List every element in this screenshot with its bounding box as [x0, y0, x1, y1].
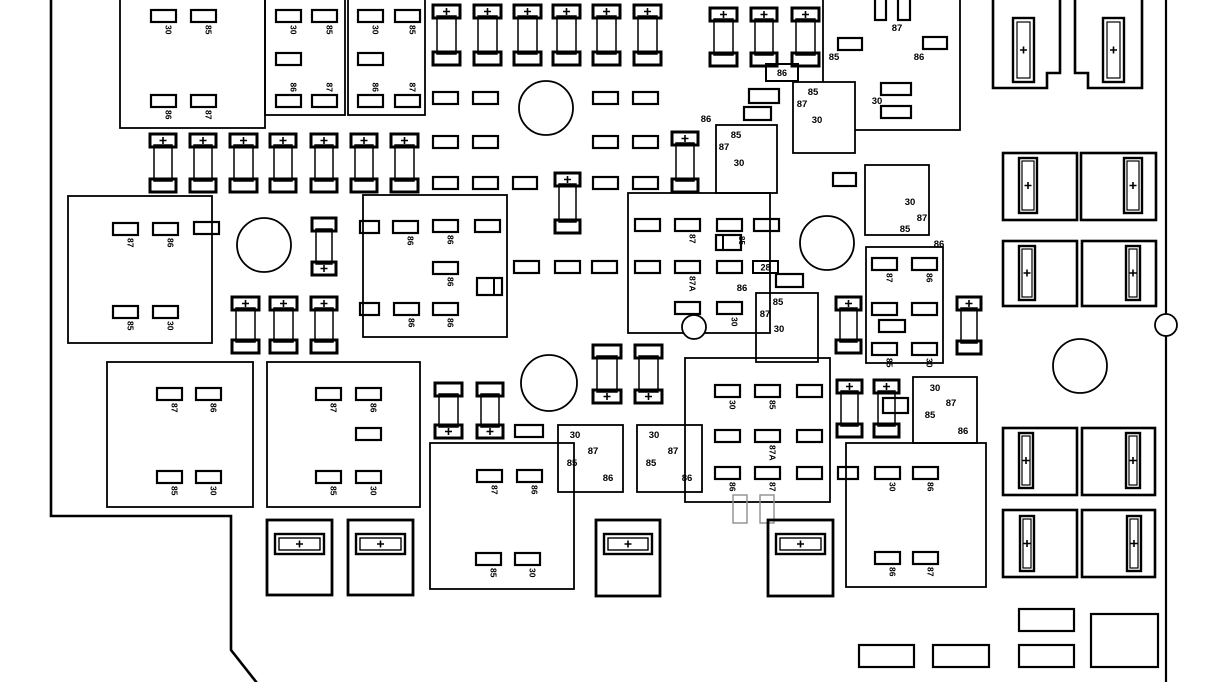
cavity-slot: [593, 136, 618, 148]
pin-label: 86: [371, 83, 381, 93]
plain-slot: [1019, 609, 1074, 631]
pin-label: 86: [164, 110, 174, 120]
terminal-label: 86: [701, 114, 712, 125]
fuse-body: [154, 145, 172, 181]
pin-label: 85: [329, 486, 339, 496]
fuse-plus-mark: [361, 137, 368, 144]
fuse-holder: [348, 520, 413, 595]
ghost-slot: [733, 495, 747, 523]
cavity-slot: [151, 95, 176, 107]
cavity-slot: [196, 471, 221, 483]
cavity-slot: [473, 136, 498, 148]
pin-label: 86: [209, 403, 219, 413]
maxi-fuse-notched: [1075, 0, 1142, 88]
cavity-slot: [433, 220, 458, 232]
maxi-fuse-plus-mark: [1020, 47, 1027, 54]
cavity-slot: [356, 428, 381, 440]
cavity-slot: [194, 222, 219, 234]
maxi-fuse-plus-mark: [1025, 182, 1032, 189]
plain-slot: [859, 645, 914, 667]
cavity-slot: [276, 10, 301, 22]
fuse-plus-mark: [563, 8, 570, 15]
pin-label: 30: [289, 25, 299, 35]
pin-label: 87: [329, 403, 339, 413]
fuse-holder: [267, 520, 332, 595]
alignment-hole: [800, 216, 854, 270]
fuse-body: [315, 308, 333, 342]
fuse-body: [315, 145, 333, 181]
fuse-plus-mark: [966, 300, 973, 307]
terminal-label: 87: [797, 99, 808, 110]
fuse-plus-mark: [644, 8, 651, 15]
cavity-slot: [872, 343, 897, 355]
fuse-plus-mark: [564, 176, 571, 183]
terminal-label: 85: [925, 410, 936, 421]
pin-label: 87: [408, 83, 418, 93]
pin-label: 85: [489, 568, 499, 578]
pin-label: 87: [126, 238, 136, 248]
relay-block: [793, 82, 855, 153]
alignment-hole: [1053, 339, 1107, 393]
cavity-slot: [797, 467, 822, 479]
fuse-holder: [768, 520, 833, 596]
cavity-slot: [593, 92, 618, 104]
cavity-slot: [394, 303, 419, 315]
pin-label: 30: [209, 486, 219, 496]
pin-label: 30: [888, 482, 898, 492]
pin-label: 87A: [768, 445, 778, 461]
plain-slot: [923, 37, 947, 49]
terminal-label: 85: [773, 297, 784, 308]
cavity-slot: [276, 95, 301, 107]
pin-label: 85: [204, 25, 214, 35]
plain-slot: [833, 173, 856, 186]
cavity-slot: [517, 470, 542, 482]
fuse-body: [878, 391, 895, 426]
cavity-slot: [633, 136, 658, 148]
plain-slot: [749, 89, 779, 103]
terminal-label: 86: [603, 473, 614, 484]
pin-label: 86: [166, 238, 176, 248]
fuse-plus-mark: [846, 383, 853, 390]
maxi-fuse-box: [1003, 153, 1077, 220]
terminal-label: 86: [737, 283, 748, 294]
cavity-slot: [715, 467, 740, 479]
cavity-slot: [395, 10, 420, 22]
maxi-fuse-plus-mark: [1023, 457, 1030, 464]
cavity-slot: [196, 388, 221, 400]
relay-block: [120, 0, 265, 128]
plain-slot: [881, 83, 911, 95]
terminal-label: 86: [958, 426, 969, 437]
cavity-slot: [157, 471, 182, 483]
pin-label: 86: [888, 567, 898, 577]
cavity-slot: [356, 471, 381, 483]
cavity-slot: [754, 219, 779, 231]
terminal-label: 85: [829, 52, 840, 63]
fuse-body: [274, 145, 292, 181]
pin-label: 85: [126, 321, 136, 331]
terminal-label: 85: [646, 458, 657, 469]
terminal-label: 86: [934, 239, 945, 250]
pin-label: 86: [407, 318, 417, 328]
plain-slot: [1019, 645, 1074, 667]
pin-label: 87: [688, 234, 698, 244]
pin-label: 86: [446, 277, 456, 287]
pin-label: 87: [885, 273, 895, 283]
cavity-slot: [157, 388, 182, 400]
cavity-slot: [755, 385, 780, 397]
fuse-holder: [596, 520, 660, 596]
fuse-holder-plus-mark: [797, 541, 804, 548]
cavity-slot: [715, 430, 740, 442]
cavity-slot: [797, 385, 822, 397]
pin-label: 30: [728, 400, 738, 410]
cavity-slot: [717, 219, 742, 231]
fuse-plus-mark: [883, 383, 890, 390]
pin-label: 87: [170, 403, 180, 413]
fuse-plus-mark: [761, 11, 768, 18]
alignment-hole: [237, 218, 291, 272]
cavity-slot: [153, 306, 178, 318]
fuse-body: [236, 308, 255, 342]
cavity-slot: [872, 303, 897, 315]
fuse-body: [194, 145, 212, 181]
fuse-plus-mark: [682, 135, 689, 142]
fuse-relay-panel-diagram: 3085868730858687308586878786853086868686…: [0, 0, 1228, 682]
cavity-slot: [715, 385, 740, 397]
terminal-label: 85: [900, 224, 911, 235]
cavity-slot: [433, 303, 458, 315]
cavity-slot: [151, 10, 176, 22]
cavity-slot: [395, 95, 420, 107]
fuse-plus-mark: [321, 137, 328, 144]
fuse-plus-mark: [484, 8, 491, 15]
pin-label: 87: [325, 83, 335, 93]
cavity-slot: [358, 10, 383, 22]
fuse-plus-mark: [524, 8, 531, 15]
cavity-slot: [475, 220, 500, 232]
cavity-slot: [113, 306, 138, 318]
fuse-plus-mark: [445, 428, 452, 435]
fuse-body: [714, 19, 733, 55]
relay-block: [430, 443, 574, 589]
pin-label: 30: [166, 321, 176, 331]
cavity-slot: [312, 95, 337, 107]
terminal-label: 86: [914, 52, 925, 63]
cavity-slot: [879, 320, 905, 332]
cavity-slot: [635, 261, 660, 273]
plain-slot: [776, 274, 803, 287]
pin-label: 86: [369, 403, 379, 413]
terminal-label: 87: [668, 446, 679, 457]
maxi-fuse-box: [1003, 510, 1077, 577]
fuse-plus-mark: [160, 137, 167, 144]
cavity-slot: [316, 471, 341, 483]
cavity-slot: [433, 177, 458, 189]
plain-slot: [838, 38, 862, 50]
cavity-slot: [473, 92, 498, 104]
fuse-body: [518, 16, 537, 54]
fuse-body: [439, 394, 458, 427]
fuse-body: [597, 16, 616, 54]
fuse-body: [395, 145, 414, 181]
terminal-label: 85: [567, 458, 578, 469]
cavity-slot: [358, 95, 383, 107]
fuse-body: [557, 16, 576, 54]
cavity-slot: [514, 261, 539, 273]
alignment-hole: [682, 315, 706, 339]
maxi-fuse-plus-mark: [1024, 270, 1031, 277]
cavity-slot: [476, 553, 501, 565]
cavity-slot: [717, 261, 742, 273]
relay-block: [716, 125, 777, 193]
cavity-slot: [191, 10, 216, 22]
pin-label: 86: [289, 83, 299, 93]
terminal-label: 87: [946, 398, 957, 409]
fuse-body: [597, 356, 617, 392]
boxed-label-text: 28: [760, 263, 770, 273]
pin-label: 85: [885, 358, 895, 368]
pin-label: 85: [768, 400, 778, 410]
maxi-fuse-plus-mark: [1131, 540, 1138, 547]
cavity-slot: [872, 258, 897, 270]
fuse-plus-mark: [321, 265, 328, 272]
fuse-body: [355, 145, 373, 181]
cavity-slot: [555, 261, 580, 273]
pin-label: 87: [926, 567, 936, 577]
pin-label: 85: [325, 25, 335, 35]
terminal-label: 30: [872, 96, 883, 107]
fuse-body: [481, 394, 499, 427]
maxi-fuse-box: [1003, 428, 1077, 495]
pin-label: 86: [406, 236, 416, 246]
fuse-plus-mark: [603, 8, 610, 15]
plain-slot: [898, 0, 910, 20]
pin-label: 30: [164, 25, 174, 35]
fuse-plus-mark: [845, 300, 852, 307]
cavity-slot: [913, 467, 938, 479]
cavity-slot: [312, 10, 337, 22]
fuse-holder-plus-mark: [296, 541, 303, 548]
pin-label: 85: [170, 486, 180, 496]
plain-slot: [515, 425, 543, 437]
pin-label: 86: [446, 318, 456, 328]
alignment-hole: [519, 81, 573, 135]
cavity-slot: [797, 430, 822, 442]
cavity-slot: [513, 177, 537, 189]
relay-block: [267, 362, 420, 507]
relay-block: [865, 165, 929, 235]
relay-block: [846, 443, 986, 587]
terminal-label: 30: [734, 158, 745, 169]
pin-label: 86: [446, 235, 456, 245]
fuse-plus-mark: [802, 11, 809, 18]
pin-label: 30: [925, 358, 935, 368]
cavity-slot: [356, 388, 381, 400]
cavity-slot: [675, 261, 700, 273]
fuse-body: [559, 184, 576, 222]
fuse-body: [840, 308, 857, 342]
maxi-fuse-plus-mark: [1130, 457, 1137, 464]
cavity-slot: [675, 219, 700, 231]
maxi-fuse-notched: [993, 0, 1060, 88]
fuse-body: [274, 308, 293, 342]
panel-boundary-left: [51, 0, 257, 682]
cavity-slot: [838, 467, 858, 479]
boxed-label-text: 86: [777, 68, 787, 78]
fuse-plus-mark: [443, 8, 450, 15]
fuse-body: [755, 19, 773, 55]
maxi-fuse-box: [1082, 428, 1155, 495]
maxi-fuse-plus-mark: [1130, 182, 1137, 189]
pin-label: 85: [408, 25, 418, 35]
cavity-slot: [633, 177, 658, 189]
pin-label: 86: [728, 482, 738, 492]
pin-label: 30: [528, 568, 538, 578]
fuse-holder-plus-mark: [377, 541, 384, 548]
fuse-body: [676, 143, 694, 181]
fuse-body: [234, 145, 253, 181]
maxi-fuse-box: [1081, 153, 1156, 220]
cavity-slot: [913, 552, 938, 564]
cavity-slot: [592, 261, 617, 273]
cavity-slot: [433, 262, 458, 274]
terminal-label: 87: [917, 213, 928, 224]
fuse-body: [478, 16, 497, 54]
terminal-label: 30: [774, 324, 785, 335]
fuse-body: [437, 16, 456, 54]
plain-slot: [744, 107, 771, 120]
plain-slot: [933, 645, 989, 667]
alignment-hole: [521, 355, 577, 411]
fuse-plus-mark: [200, 137, 207, 144]
relay-block: [348, 0, 425, 115]
fuse-body: [841, 391, 858, 426]
plain-slot: [875, 0, 886, 20]
fuse-plus-mark: [321, 300, 328, 307]
cavity-slot: [358, 53, 383, 65]
terminal-label: 86: [682, 473, 693, 484]
terminal-label: 30: [930, 383, 941, 394]
cavity-slot: [633, 92, 658, 104]
cavity-slot: [755, 430, 780, 442]
terminal-label: 87: [588, 446, 599, 457]
cavity-slot: [912, 303, 937, 315]
fuse-plus-mark: [280, 137, 287, 144]
fuse-body: [796, 19, 815, 55]
split-cavity: [477, 278, 502, 295]
terminal-label: 87: [892, 23, 903, 34]
cavity-slot: [593, 177, 618, 189]
fuse-plus-mark: [242, 300, 249, 307]
terminal-label: 85: [808, 87, 819, 98]
cavity-slot: [755, 467, 780, 479]
fuse-plus-mark: [720, 11, 727, 18]
fuse-plus-mark: [487, 428, 494, 435]
maxi-fuse-plus-mark: [1024, 540, 1031, 547]
pin-label: 86: [925, 273, 935, 283]
pin-label: 30: [730, 317, 740, 327]
plain-slot: [881, 106, 911, 118]
maxi-fuse-plus-mark: [1130, 270, 1137, 277]
fuse-body: [638, 16, 657, 54]
cavity-slot: [191, 95, 216, 107]
pin-label: 30: [371, 25, 381, 35]
fuse-plus-mark: [645, 393, 652, 400]
relay-block: [756, 293, 818, 362]
cavity-slot: [276, 53, 301, 65]
cavity-slot: [875, 552, 900, 564]
maxi-fuse-box: [1082, 241, 1156, 306]
fuse-body: [639, 356, 658, 392]
terminal-label: 30: [570, 430, 581, 441]
fuse-plus-mark: [240, 137, 247, 144]
pin-label: 87A: [688, 276, 698, 292]
fuse-body: [316, 229, 332, 264]
maxi-fuse-box: [1082, 510, 1155, 577]
cavity-slot: [717, 302, 742, 314]
cavity-slot: [675, 302, 700, 314]
maxi-fuse-plus-mark: [1110, 47, 1117, 54]
relay-block: [866, 247, 943, 363]
cavity-slot: [875, 467, 900, 479]
cavity-slot: [433, 92, 458, 104]
fuse-plus-mark: [401, 137, 408, 144]
relay-block: [68, 196, 212, 343]
pin-label: 87: [490, 485, 500, 495]
cavity-slot: [113, 223, 138, 235]
terminal-label: 85: [731, 130, 742, 141]
cavity-slot: [316, 388, 341, 400]
cavity-slot: [515, 553, 540, 565]
pin-label: 86: [530, 485, 540, 495]
fuse-body: [961, 308, 977, 343]
cavity-slot: [477, 470, 502, 482]
pin-label: 30: [369, 486, 379, 496]
fuse-plus-mark: [604, 393, 611, 400]
pin-label: 85: [737, 236, 746, 245]
pin-label: 86: [926, 482, 936, 492]
fuse-holder-plus-mark: [625, 541, 632, 548]
cavity-slot: [153, 223, 178, 235]
cavity-slot: [912, 258, 937, 270]
cavity-slot: [393, 221, 418, 233]
plain-slot: [1091, 614, 1158, 667]
cavity-slot: [912, 343, 937, 355]
cavity-slot: [635, 219, 660, 231]
maxi-fuse-box: [1003, 241, 1077, 306]
terminal-label: 87: [760, 309, 771, 320]
fuse-box-diagram-page: 3085868730858687308586878786853086868686…: [0, 0, 1228, 682]
terminal-label: 30: [812, 115, 823, 126]
cavity-slot: [473, 177, 498, 189]
pin-label: 87: [768, 482, 778, 492]
terminal-label: 30: [905, 197, 916, 208]
terminal-label: 87: [719, 142, 730, 153]
cavity-slot: [433, 136, 458, 148]
boundary-mount-hole: [1155, 314, 1177, 336]
terminal-label: 30: [649, 430, 660, 441]
fuse-plus-mark: [280, 300, 287, 307]
pin-label: 87: [204, 110, 214, 120]
